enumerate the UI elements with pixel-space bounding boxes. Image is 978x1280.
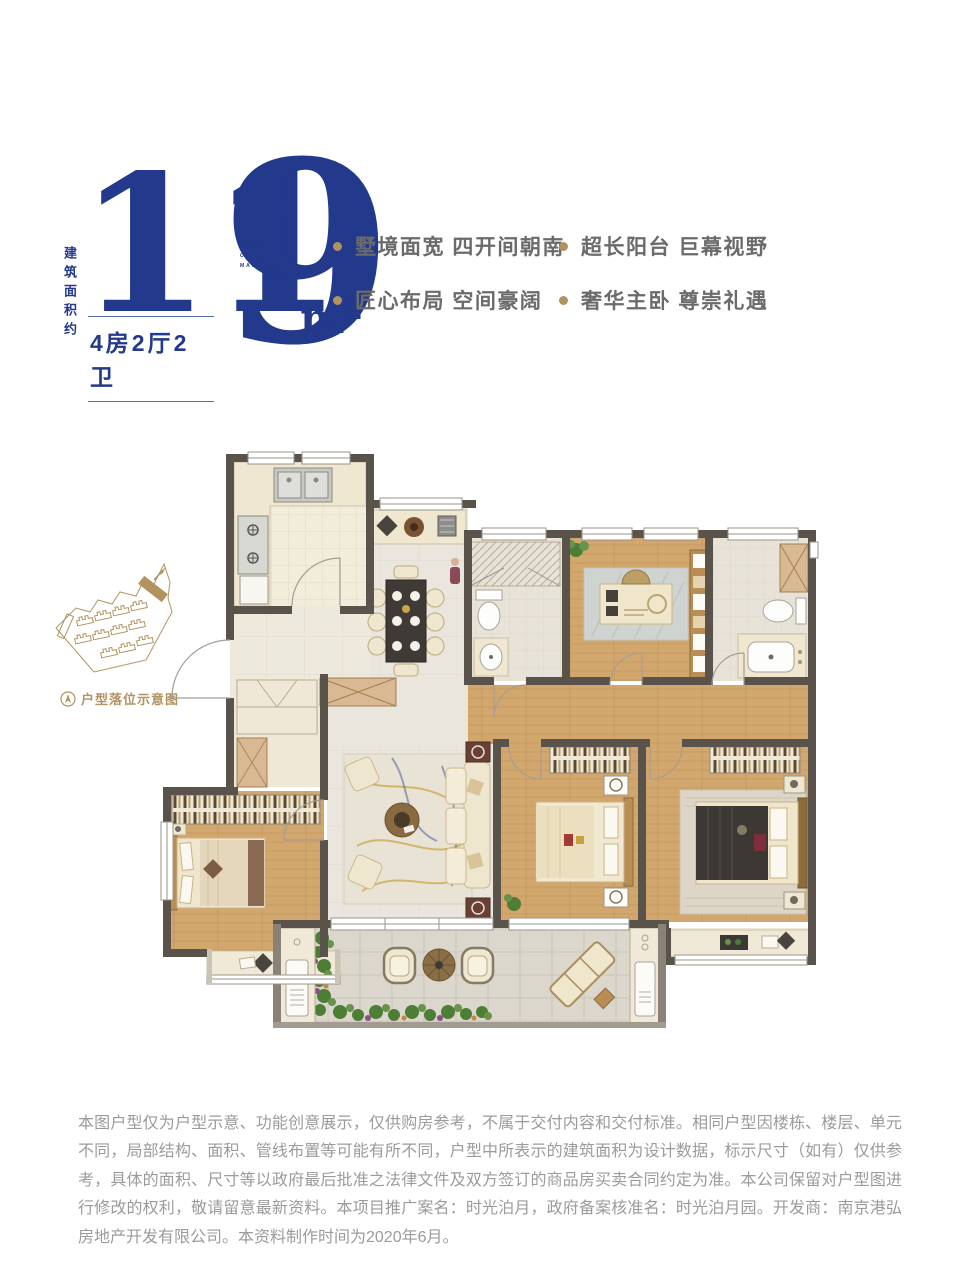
bullet-dot-icon xyxy=(333,296,342,305)
bed xyxy=(169,836,265,910)
desk xyxy=(600,584,672,624)
brand-watermark: RIVER OF MANSION xyxy=(240,240,294,272)
kitchen-sink xyxy=(274,468,332,502)
bathroom-vanity xyxy=(474,638,508,676)
feature-item-4: 奢华主卧 尊崇礼遇 xyxy=(559,285,768,315)
sofa xyxy=(446,762,490,888)
unit-layout-badge-text: 4房2厅2卫 xyxy=(90,330,189,390)
washer xyxy=(780,544,808,592)
feature-label: 超长阳台 巨幕视野 xyxy=(581,231,768,261)
brand-watermark-line3: MANSION xyxy=(240,261,294,272)
coffee-table xyxy=(385,803,419,837)
feature-item-2: 超长阳台 巨幕视野 xyxy=(559,231,768,261)
brand-watermark-line2: OF xyxy=(240,251,294,262)
console-table xyxy=(370,510,466,544)
wardrobe xyxy=(550,747,630,773)
person-figure xyxy=(450,558,460,584)
bed xyxy=(536,798,633,886)
dining-table xyxy=(386,580,426,662)
unit-layout-badge: 4房2厅2卫 xyxy=(88,316,214,402)
outdoor-table xyxy=(423,949,455,981)
legal-disclaimer: 本图户型仅为户型示意、功能创意展示，仅供购房参考，不属于交付内容和交付标准。相同… xyxy=(78,1110,902,1252)
stove xyxy=(238,516,268,574)
area-vertical-label: 建筑面积约 xyxy=(60,246,79,341)
bullet-dot-icon xyxy=(559,296,568,305)
feature-item-1: 墅境面宽 四开间朝南 xyxy=(333,231,559,261)
utility-closet-right xyxy=(630,928,660,1026)
floor-plan-drawing xyxy=(152,446,876,1040)
floor-plan xyxy=(152,446,876,1045)
bullet-dot-icon xyxy=(333,242,342,251)
living-room xyxy=(344,742,490,918)
fridge xyxy=(240,576,268,604)
feature-label: 墅境面宽 四开间朝南 xyxy=(355,231,565,261)
bathroom-vanity xyxy=(738,634,806,678)
feature-item-3: 匠心布局 空间豪阔 xyxy=(333,285,559,315)
north-compass-icon xyxy=(60,691,76,707)
brand-watermark-line1: RIVER xyxy=(240,240,294,251)
toilet xyxy=(763,598,806,624)
feature-label: 奢华主卧 尊崇礼遇 xyxy=(581,285,768,315)
wardrobe xyxy=(710,747,800,773)
bay-window-seat xyxy=(669,930,809,956)
bullet-dot-icon xyxy=(559,242,568,251)
feature-list: 墅境面宽 四开间朝南 超长阳台 巨幕视野 匠心布局 空间豪阔 奢华主卧 尊崇礼遇 xyxy=(333,231,768,315)
bed xyxy=(696,798,807,888)
feature-label: 匠心布局 空间豪阔 xyxy=(355,285,542,315)
floorplan-poster-page: 建筑面积约 11 9 m² RIVER OF MANSION 4房2厅2卫 墅境… xyxy=(0,0,978,1280)
toilet xyxy=(476,590,502,630)
